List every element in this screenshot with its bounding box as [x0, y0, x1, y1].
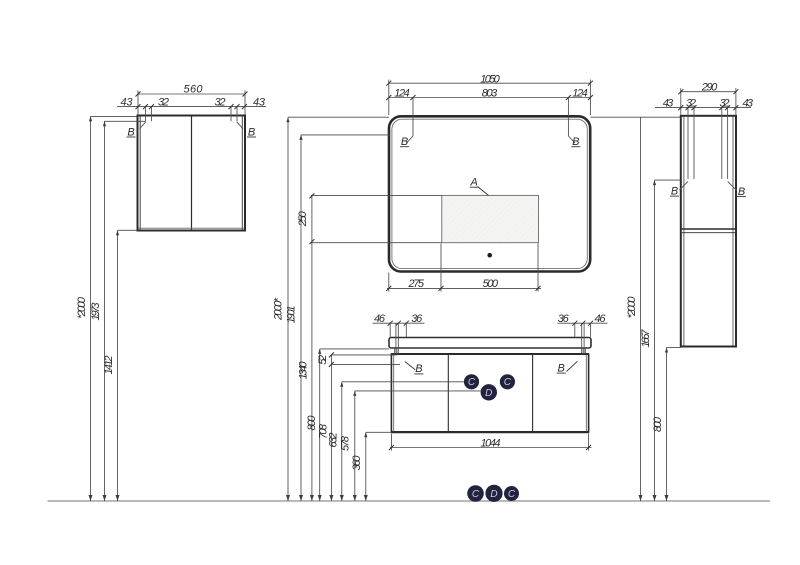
svg-text:46: 46 [595, 313, 607, 325]
svg-text:C: C [468, 377, 476, 388]
svg-text:B: B [558, 362, 565, 374]
svg-text:43: 43 [663, 98, 674, 110]
svg-text:1901: 1901 [286, 306, 298, 324]
svg-text:578: 578 [340, 435, 352, 451]
svg-text:32: 32 [720, 98, 730, 110]
svg-text:250: 250 [297, 210, 309, 227]
svg-text:32: 32 [215, 97, 226, 109]
svg-text:46: 46 [374, 313, 386, 325]
svg-text:1050: 1050 [480, 73, 500, 85]
svg-text:32: 32 [158, 97, 169, 109]
svg-text:D: D [485, 388, 492, 399]
svg-text:800: 800 [306, 415, 318, 431]
svg-text:C: C [508, 489, 516, 500]
svg-text:500: 500 [483, 278, 499, 290]
svg-text:B: B [248, 126, 255, 138]
svg-text:A: A [470, 177, 478, 189]
svg-text:360: 360 [351, 455, 363, 471]
svg-text:1412: 1412 [103, 356, 115, 375]
svg-text:52: 52 [317, 355, 329, 365]
svg-text:B: B [415, 363, 422, 375]
svg-text:2000*: 2000* [273, 297, 285, 321]
svg-text:1044: 1044 [481, 437, 501, 449]
svg-text:803: 803 [482, 87, 498, 99]
svg-text:275: 275 [408, 278, 425, 290]
svg-text:1973: 1973 [90, 302, 102, 321]
svg-text:560: 560 [184, 83, 204, 95]
svg-text:B: B [671, 185, 678, 197]
svg-text:43: 43 [121, 97, 134, 109]
svg-text:32: 32 [686, 98, 696, 110]
svg-text:B: B [127, 126, 134, 138]
svg-text:43: 43 [253, 97, 266, 109]
svg-text:124: 124 [394, 87, 410, 99]
svg-text:*2000: *2000 [76, 296, 88, 319]
svg-text:36: 36 [411, 313, 423, 325]
svg-text:632: 632 [328, 433, 340, 448]
svg-text:1340: 1340 [297, 361, 309, 380]
svg-text:800: 800 [652, 416, 664, 432]
svg-text:36: 36 [558, 313, 570, 325]
svg-text:C: C [504, 377, 512, 388]
svg-text:B: B [738, 186, 745, 198]
svg-text:C: C [472, 489, 480, 500]
svg-text:B: B [572, 136, 579, 148]
svg-text:124: 124 [572, 87, 588, 99]
svg-text:B: B [401, 136, 408, 148]
svg-text:290: 290 [701, 82, 718, 94]
svg-text:*2000: *2000 [626, 296, 638, 319]
svg-text:D: D [490, 489, 497, 500]
svg-text:43: 43 [743, 98, 754, 110]
svg-text:1667: 1667 [640, 329, 652, 348]
